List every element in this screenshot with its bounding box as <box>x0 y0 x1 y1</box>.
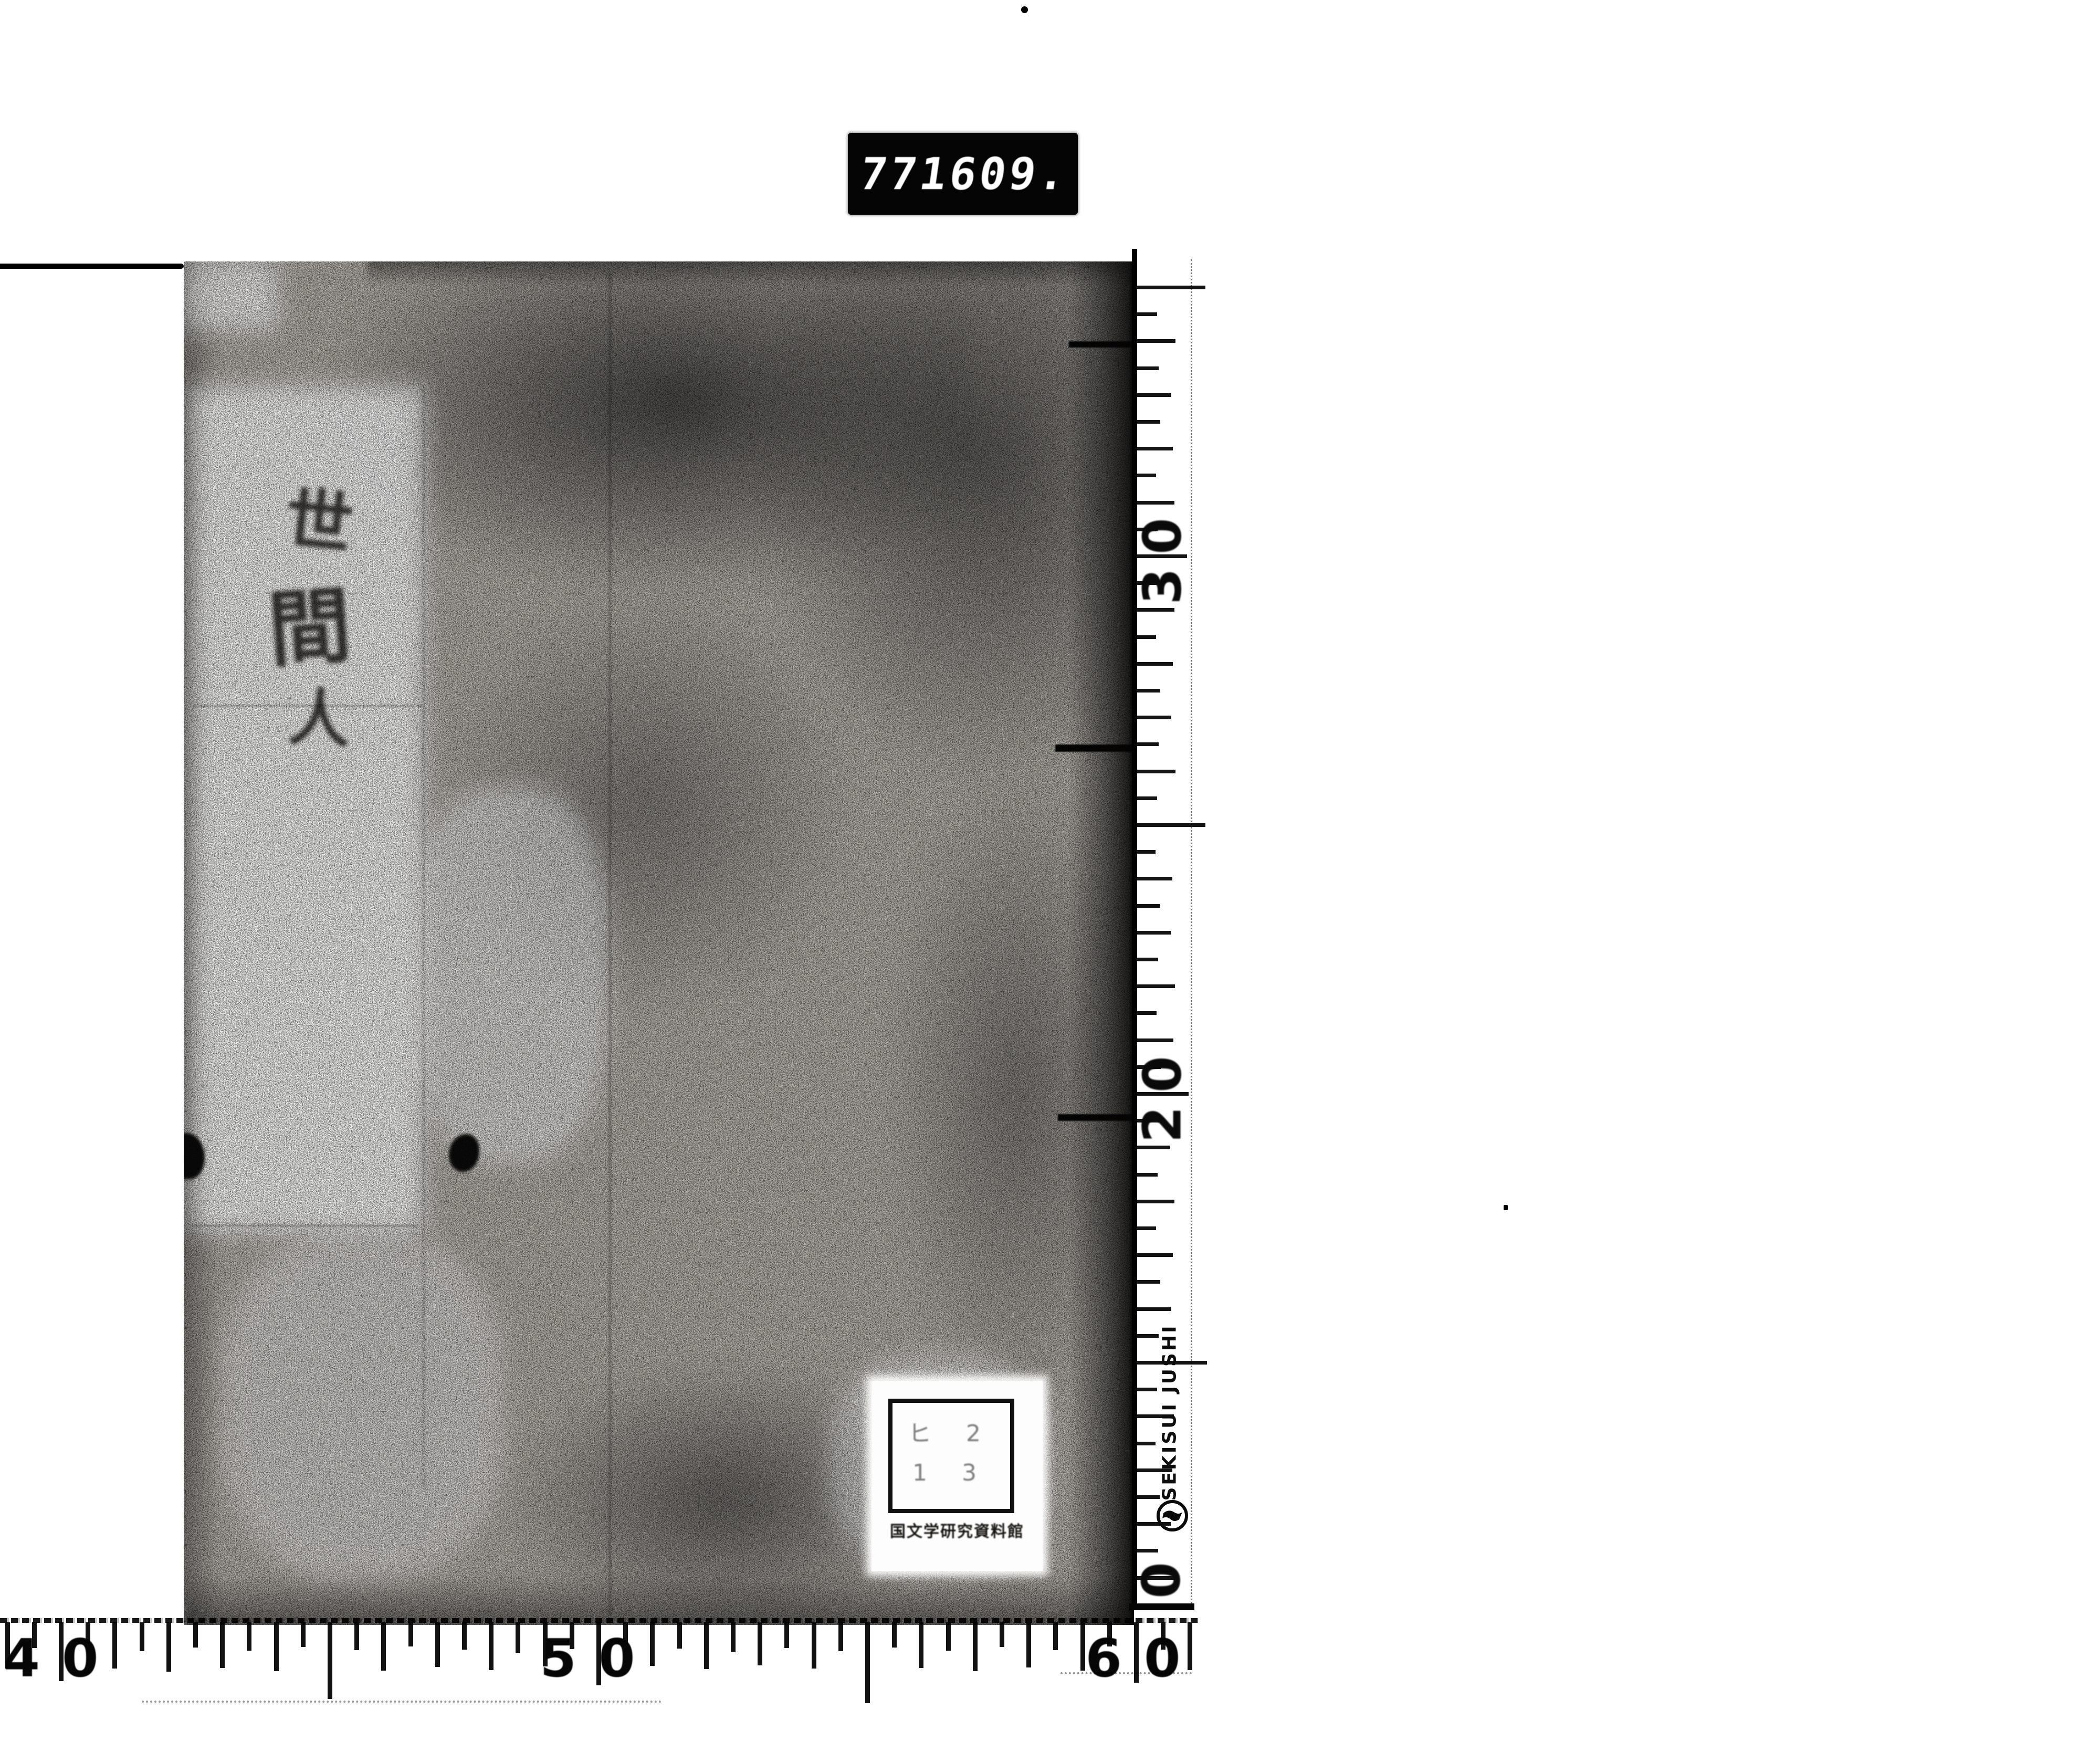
ruler-tick <box>1137 931 1171 935</box>
ruler-tick <box>1137 904 1160 908</box>
scan-page: 771 609. 世 間 人 <box>0 0 2100 1752</box>
label-caption: 国文学研究資料館 <box>871 1518 1043 1541</box>
scan-artifact-dots <box>142 1701 661 1703</box>
ruler-tick <box>1080 1622 1085 1671</box>
counter-left-digits: 771 <box>857 148 953 200</box>
library-label: ヒ 2 1 3 国文学研究資料館 <box>871 1381 1043 1571</box>
ruler-tick <box>1137 1173 1158 1177</box>
ruler-tick <box>1137 635 1156 639</box>
ruler-tick <box>946 1622 951 1651</box>
ruler-tick <box>1137 1334 1159 1338</box>
ruler-tick <box>892 1622 897 1648</box>
ruler-tick <box>489 1622 493 1670</box>
ruler-tick <box>1137 420 1160 424</box>
ruler-tick <box>1137 1388 1157 1391</box>
ruler-tick <box>1137 447 1173 450</box>
ruler-end-bar <box>1129 1603 1194 1610</box>
ruler-tick <box>677 1622 682 1649</box>
ruler-tick <box>1026 1622 1031 1667</box>
ruler-tick <box>1137 312 1157 316</box>
ruler-tick <box>1137 339 1175 343</box>
ruler-tick <box>1137 286 1205 289</box>
bottom-scale-ruler: 40 50 60 <box>0 1616 1202 1752</box>
ruler-tick <box>1137 850 1156 854</box>
bottom-ruler-label-60: 60 <box>1085 1628 1202 1689</box>
ruler-tick <box>1137 770 1175 773</box>
scan-artifact-dots <box>1060 1672 1192 1674</box>
ruler-tick <box>1137 716 1171 719</box>
ruler-tick <box>758 1622 762 1665</box>
ruler-tick <box>381 1622 386 1671</box>
film-frame-counter: 771 609. <box>848 133 1078 215</box>
ruler-tick <box>1137 1200 1174 1203</box>
bottom-ruler-label-40: 40 <box>3 1628 120 1689</box>
ruler-tick <box>301 1622 306 1647</box>
ruler-tick <box>408 1622 413 1646</box>
ruler-tick <box>462 1622 467 1650</box>
ruler-label-30: 30 <box>1132 504 1193 604</box>
vertical-scale-ruler: 30 20 0 SEKISUI JUSHI <box>1123 249 1221 1612</box>
ruler-tick <box>1137 1226 1156 1230</box>
ruler-tick <box>1137 1146 1170 1149</box>
ruler-tick <box>274 1622 279 1671</box>
ruler-tick <box>1137 877 1172 880</box>
ruler-tick <box>919 1622 923 1668</box>
ruler-tick <box>247 1622 251 1651</box>
dust-speck <box>1504 1205 1508 1210</box>
ruler-tick <box>193 1622 198 1648</box>
ruler-tick <box>1137 608 1174 612</box>
ruler-tick <box>1137 393 1171 397</box>
ruler-label-20: 20 <box>1132 1042 1193 1142</box>
ruler-tick <box>1137 1442 1156 1445</box>
ruler-tick <box>1137 958 1158 961</box>
ruler-tick <box>1137 474 1156 477</box>
ruler-tick <box>328 1622 332 1699</box>
ruler-tick <box>812 1622 816 1669</box>
ruler-tick <box>1137 1495 1160 1499</box>
ruler-dotted-edge <box>1191 259 1192 1603</box>
label-call-number-box: ヒ 2 1 3 <box>888 1399 1014 1513</box>
registration-line <box>0 264 184 269</box>
ruler-tick <box>354 1622 359 1650</box>
book-cover: 世 間 人 ヒ 2 1 3 国文学研究資料館 <box>184 261 1134 1625</box>
label-call-line1: ヒ 2 <box>892 1414 1010 1448</box>
ruler-tick <box>1137 366 1159 370</box>
ruler-tick <box>865 1622 870 1703</box>
ruler-tick <box>1137 1280 1160 1284</box>
ruler-tick <box>1000 1622 1004 1647</box>
ruler-tick <box>1137 1253 1173 1257</box>
counter-right-digits: 609. <box>946 148 1072 200</box>
ruler-tick <box>516 1622 520 1653</box>
bottom-ruler-label-50: 50 <box>540 1628 657 1689</box>
ruler-tick <box>220 1622 225 1668</box>
ruler-label-0: 0 <box>1131 1562 1192 1599</box>
ruler-tick <box>1137 1549 1158 1552</box>
ruler-tick <box>1137 796 1157 800</box>
ruler-tick <box>1137 1011 1157 1015</box>
ruler-tick <box>973 1622 978 1671</box>
ruler-tick <box>1053 1622 1058 1650</box>
ruler-tick <box>1137 984 1175 988</box>
ruler-brand-text: SEKISUI JUSHI <box>1159 1324 1181 1501</box>
ruler-tick <box>838 1622 843 1651</box>
ruler-tick <box>1137 823 1205 827</box>
ruler-edge-line <box>1132 249 1137 1609</box>
ruler-tick <box>435 1622 440 1667</box>
ruler-tick <box>731 1622 736 1652</box>
ruler-tick <box>1137 689 1160 693</box>
ruler-tick <box>1137 742 1159 746</box>
ruler-tick <box>784 1622 789 1648</box>
ruler-tick <box>1137 1038 1173 1042</box>
ruler-tick <box>166 1622 171 1672</box>
ruler-tick <box>704 1622 709 1669</box>
ruler-tick <box>1137 1307 1171 1311</box>
label-call-line2: 1 3 <box>892 1460 1010 1486</box>
sekisui-logo-icon <box>1156 1499 1189 1532</box>
ruler-tick <box>1137 662 1173 666</box>
dust-speck <box>1021 6 1028 13</box>
ruler-tick <box>140 1622 144 1651</box>
